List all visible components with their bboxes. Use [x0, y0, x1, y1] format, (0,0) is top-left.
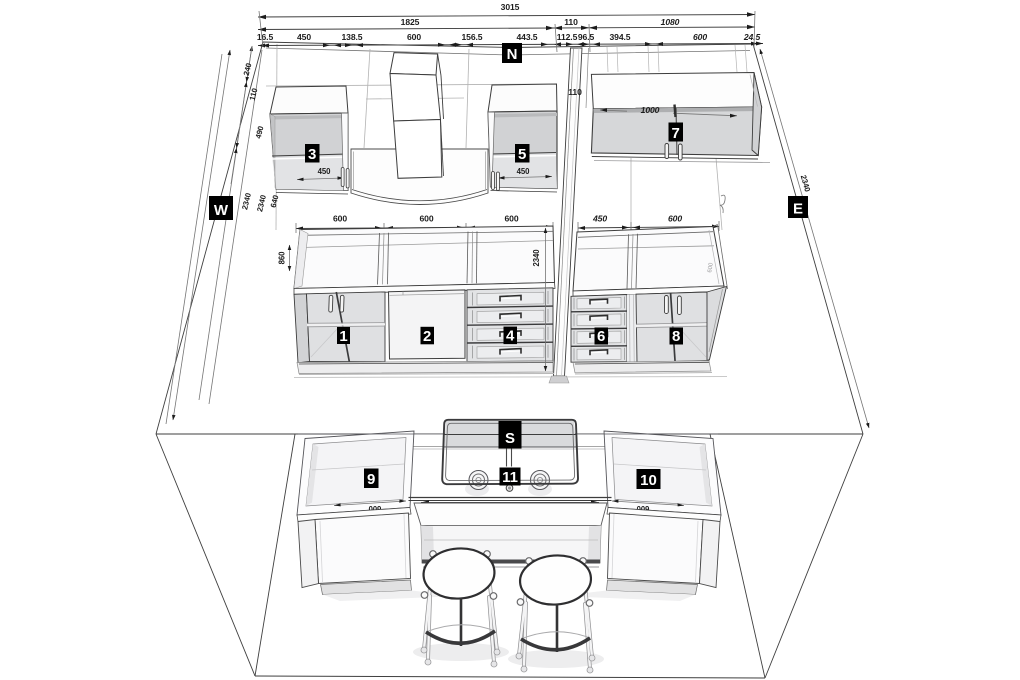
svg-text:4: 4 [506, 328, 515, 345]
svg-text:112.5: 112.5 [557, 32, 578, 42]
svg-text:3: 3 [308, 146, 316, 163]
svg-text:450: 450 [592, 214, 607, 224]
svg-text:1000: 1000 [641, 105, 660, 115]
svg-text:156.5: 156.5 [461, 32, 482, 42]
svg-text:16.5: 16.5 [257, 32, 274, 42]
svg-text:E: E [793, 201, 803, 218]
svg-text:5: 5 [518, 146, 526, 163]
svg-text:96.5: 96.5 [578, 32, 595, 42]
svg-text:110: 110 [568, 87, 582, 97]
svg-text:9: 9 [367, 471, 375, 488]
svg-text:443.5: 443.5 [516, 32, 537, 42]
svg-text:7: 7 [672, 125, 680, 142]
svg-text:600: 600 [333, 214, 347, 224]
svg-text:24.5: 24.5 [743, 32, 761, 42]
svg-text:3015: 3015 [501, 2, 520, 12]
svg-text:450: 450 [517, 167, 530, 176]
svg-text:W: W [214, 202, 229, 219]
svg-text:10: 10 [640, 472, 657, 489]
svg-text:394.5: 394.5 [609, 32, 630, 42]
svg-text:860: 860 [278, 251, 287, 264]
svg-text:600: 600 [668, 214, 682, 224]
svg-text:600: 600 [419, 214, 433, 224]
svg-text:6: 6 [597, 328, 605, 345]
svg-text:110: 110 [564, 17, 578, 27]
svg-text:S: S [505, 430, 515, 447]
svg-text:600: 600 [407, 32, 421, 42]
svg-text:1: 1 [339, 328, 347, 345]
svg-text:600: 600 [693, 32, 707, 42]
svg-text:N: N [507, 46, 518, 63]
svg-text:8: 8 [672, 328, 680, 345]
svg-text:2: 2 [423, 328, 431, 345]
svg-text:1080: 1080 [661, 17, 680, 27]
svg-text:450: 450 [318, 167, 331, 176]
svg-text:600: 600 [504, 214, 518, 224]
svg-text:11: 11 [502, 469, 518, 486]
svg-text:2340: 2340 [532, 249, 541, 267]
svg-text:138.5: 138.5 [341, 32, 362, 42]
svg-text:1825: 1825 [401, 17, 420, 27]
svg-text:450: 450 [297, 32, 311, 42]
